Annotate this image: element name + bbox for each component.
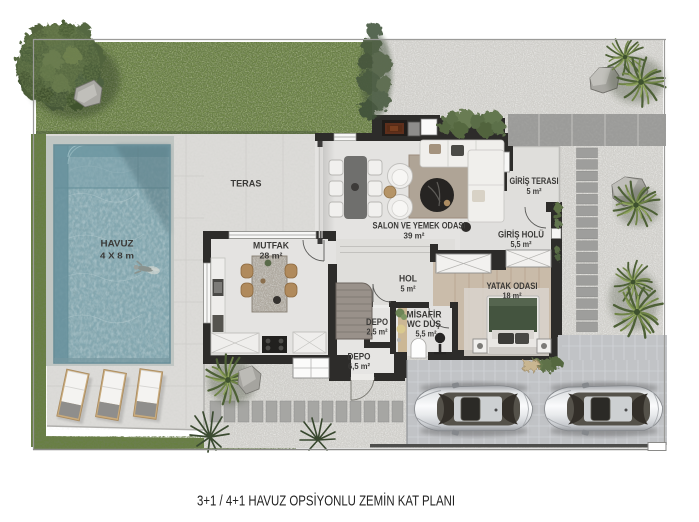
svg-text:3+1 / 4+1 HAVUZ OPSİYONLU ZEMİ: 3+1 / 4+1 HAVUZ OPSİYONLU ZEMİN KAT PLAN… bbox=[197, 492, 455, 510]
svg-text:5,5 m²: 5,5 m² bbox=[511, 239, 532, 249]
svg-text:TERAS: TERAS bbox=[231, 179, 262, 190]
svg-text:18 m²: 18 m² bbox=[503, 291, 522, 301]
svg-text:GİRİŞ TERASI: GİRİŞ TERASI bbox=[510, 176, 559, 186]
svg-text:2,5 m²: 2,5 m² bbox=[367, 327, 388, 337]
svg-text:39 m²: 39 m² bbox=[404, 231, 425, 241]
svg-text:28 m²: 28 m² bbox=[260, 251, 283, 261]
svg-text:MİSAFİR: MİSAFİR bbox=[407, 310, 442, 320]
svg-text:DEPO: DEPO bbox=[348, 352, 371, 362]
svg-text:5 m²: 5 m² bbox=[527, 186, 542, 196]
svg-text:WC DUŞ: WC DUŞ bbox=[407, 319, 441, 329]
svg-text:5 m²: 5 m² bbox=[401, 284, 416, 294]
svg-text:5,5 m²: 5,5 m² bbox=[416, 329, 437, 339]
svg-text:4 X 8 m: 4 X 8 m bbox=[100, 251, 134, 261]
svg-text:DEPO: DEPO bbox=[366, 317, 388, 327]
svg-text:6,5 m²: 6,5 m² bbox=[348, 361, 370, 371]
svg-text:HAVUZ: HAVUZ bbox=[101, 239, 134, 250]
svg-text:YATAK ODASI: YATAK ODASI bbox=[487, 281, 538, 291]
